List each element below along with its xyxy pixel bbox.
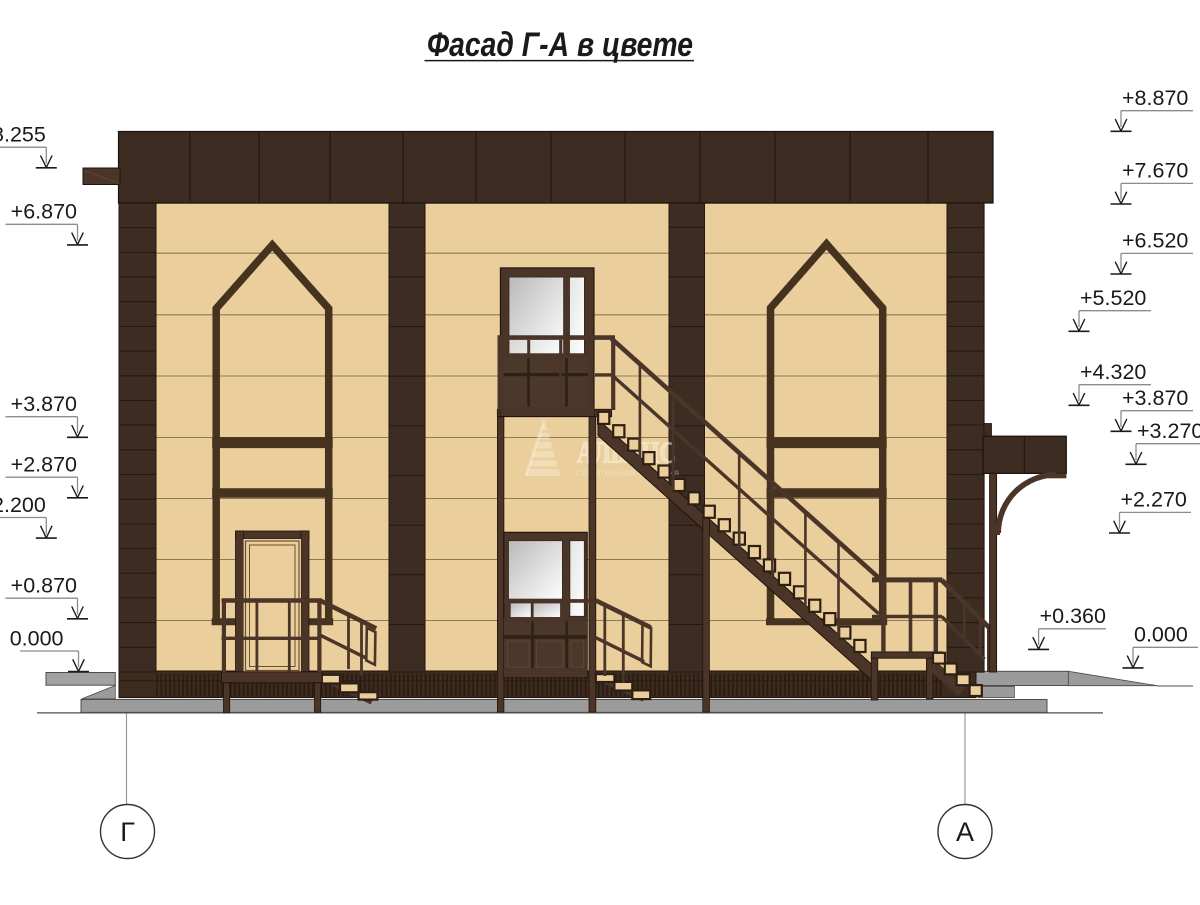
svg-text:0.000: 0.000 — [1134, 623, 1188, 647]
svg-text:А: А — [956, 817, 974, 847]
svg-text:+2.870: +2.870 — [11, 453, 77, 477]
svg-text:0.000: 0.000 — [10, 626, 64, 650]
svg-text:+6.520: +6.520 — [1122, 229, 1188, 253]
svg-text:+3.870: +3.870 — [11, 392, 77, 416]
svg-text:+6.870: +6.870 — [11, 200, 77, 224]
svg-text:+2.270: +2.270 — [1121, 488, 1187, 512]
svg-text:+3.270: +3.270 — [1137, 419, 1200, 443]
svg-text:+4.320: +4.320 — [1080, 360, 1146, 384]
svg-text:+2.200: +2.200 — [0, 493, 46, 517]
svg-text:+3.870: +3.870 — [1122, 386, 1188, 410]
svg-text:+5.520: +5.520 — [1080, 286, 1146, 310]
svg-text:+0.360: +0.360 — [1040, 604, 1106, 628]
svg-text:+7.670: +7.670 — [1122, 159, 1188, 183]
svg-text:+8.255: +8.255 — [0, 123, 46, 147]
svg-text:+0.870: +0.870 — [11, 574, 77, 598]
svg-text:+8.870: +8.870 — [1122, 86, 1188, 110]
svg-text:Фасад Г-А в цвете: Фасад Г-А в цвете — [427, 26, 693, 64]
svg-text:Г: Г — [120, 817, 135, 847]
